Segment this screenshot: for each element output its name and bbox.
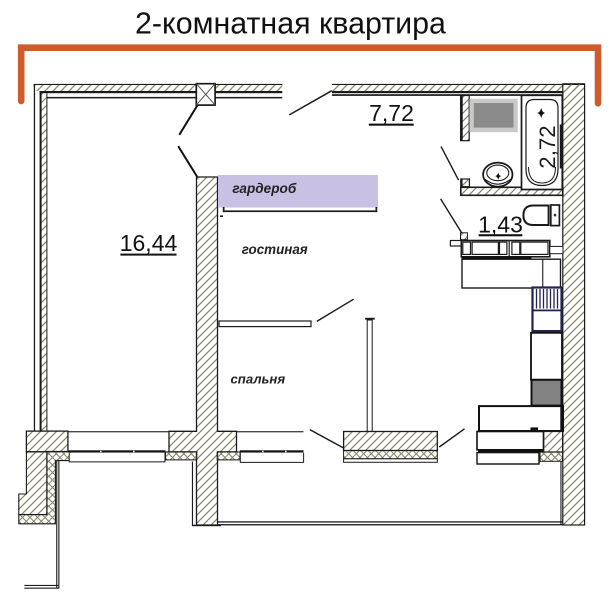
svg-text:2,72: 2,72 <box>535 125 560 168</box>
svg-text:1,43: 1,43 <box>478 212 523 238</box>
svg-text:спальня: спальня <box>230 372 285 387</box>
svg-text:гардероб: гардероб <box>232 181 297 196</box>
svg-text:гостиная: гостиная <box>242 242 308 257</box>
svg-text:7,72: 7,72 <box>369 100 414 126</box>
svg-text:16,44: 16,44 <box>120 230 178 256</box>
svg-text:2-комнатная квартира: 2-комнатная квартира <box>135 7 446 41</box>
